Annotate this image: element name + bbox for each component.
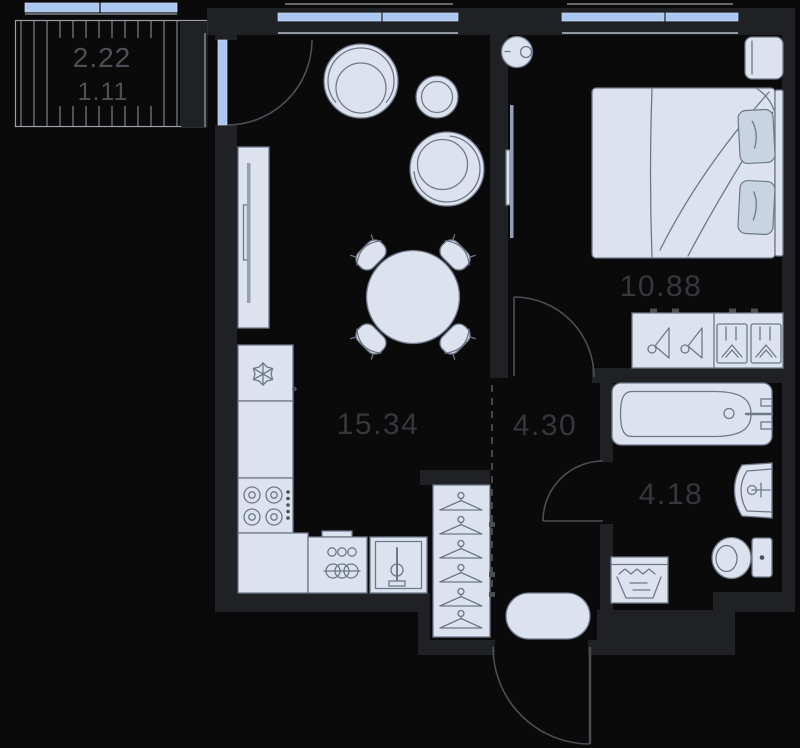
robot-vacuum: [502, 37, 533, 68]
counter-handle: [322, 531, 352, 537]
dishwasher: [308, 531, 367, 593]
entry-mat: [506, 593, 590, 639]
fridge: [238, 345, 297, 401]
closet: [433, 485, 495, 637]
washing-machine: [611, 557, 668, 603]
pillow: [738, 109, 776, 164]
headboard: [775, 90, 783, 256]
wall: [430, 640, 495, 655]
wall: [207, 8, 795, 35]
balcony-area-reduced: 1.11: [78, 78, 129, 106]
tv-stand: [238, 147, 269, 328]
wall: [215, 125, 237, 612]
wall: [592, 368, 795, 383]
label-hallway-area: 4.30: [513, 409, 577, 442]
closet-handle: [489, 572, 495, 577]
balcony-area-total: 2.22: [73, 42, 132, 73]
tv-icon: [510, 105, 514, 238]
wall: [597, 610, 735, 655]
wall: [420, 470, 490, 485]
dining-set: [349, 233, 477, 361]
floor-plan: 2.22 1.11: [0, 0, 800, 748]
nightstand: [745, 37, 783, 79]
wall: [713, 592, 795, 612]
stove: [238, 478, 293, 533]
wall: [418, 612, 430, 655]
closet-handle: [489, 522, 495, 527]
balcony-end-wall: [181, 21, 207, 127]
armchair: [324, 44, 398, 118]
corner-counter: [238, 533, 308, 593]
kitchen-counter: [238, 401, 293, 478]
wardrobe-dresser: [632, 309, 783, 369]
closet-handle: [489, 592, 495, 597]
side-table: [416, 76, 458, 118]
armchair: [410, 132, 484, 206]
tv-bracket-icon: [506, 150, 510, 205]
tv-icon: [247, 163, 251, 303]
label-bathroom-area: 4.18: [639, 478, 703, 511]
bathtub: [612, 383, 772, 445]
washbasin: [735, 463, 773, 518]
toilet: [712, 538, 772, 579]
wall: [490, 35, 508, 378]
wall: [215, 593, 430, 612]
wall: [600, 383, 613, 462]
pillow: [738, 180, 776, 235]
label-kitchen-living-area: 15.34: [337, 408, 420, 441]
bed: [592, 88, 783, 258]
label-bedroom-area: 10.88: [620, 270, 703, 303]
wall: [782, 8, 795, 612]
tv-bracket-icon: [244, 205, 248, 260]
kitchen-sink: [370, 537, 427, 593]
wall: [215, 35, 237, 40]
dining-table: [367, 251, 460, 344]
